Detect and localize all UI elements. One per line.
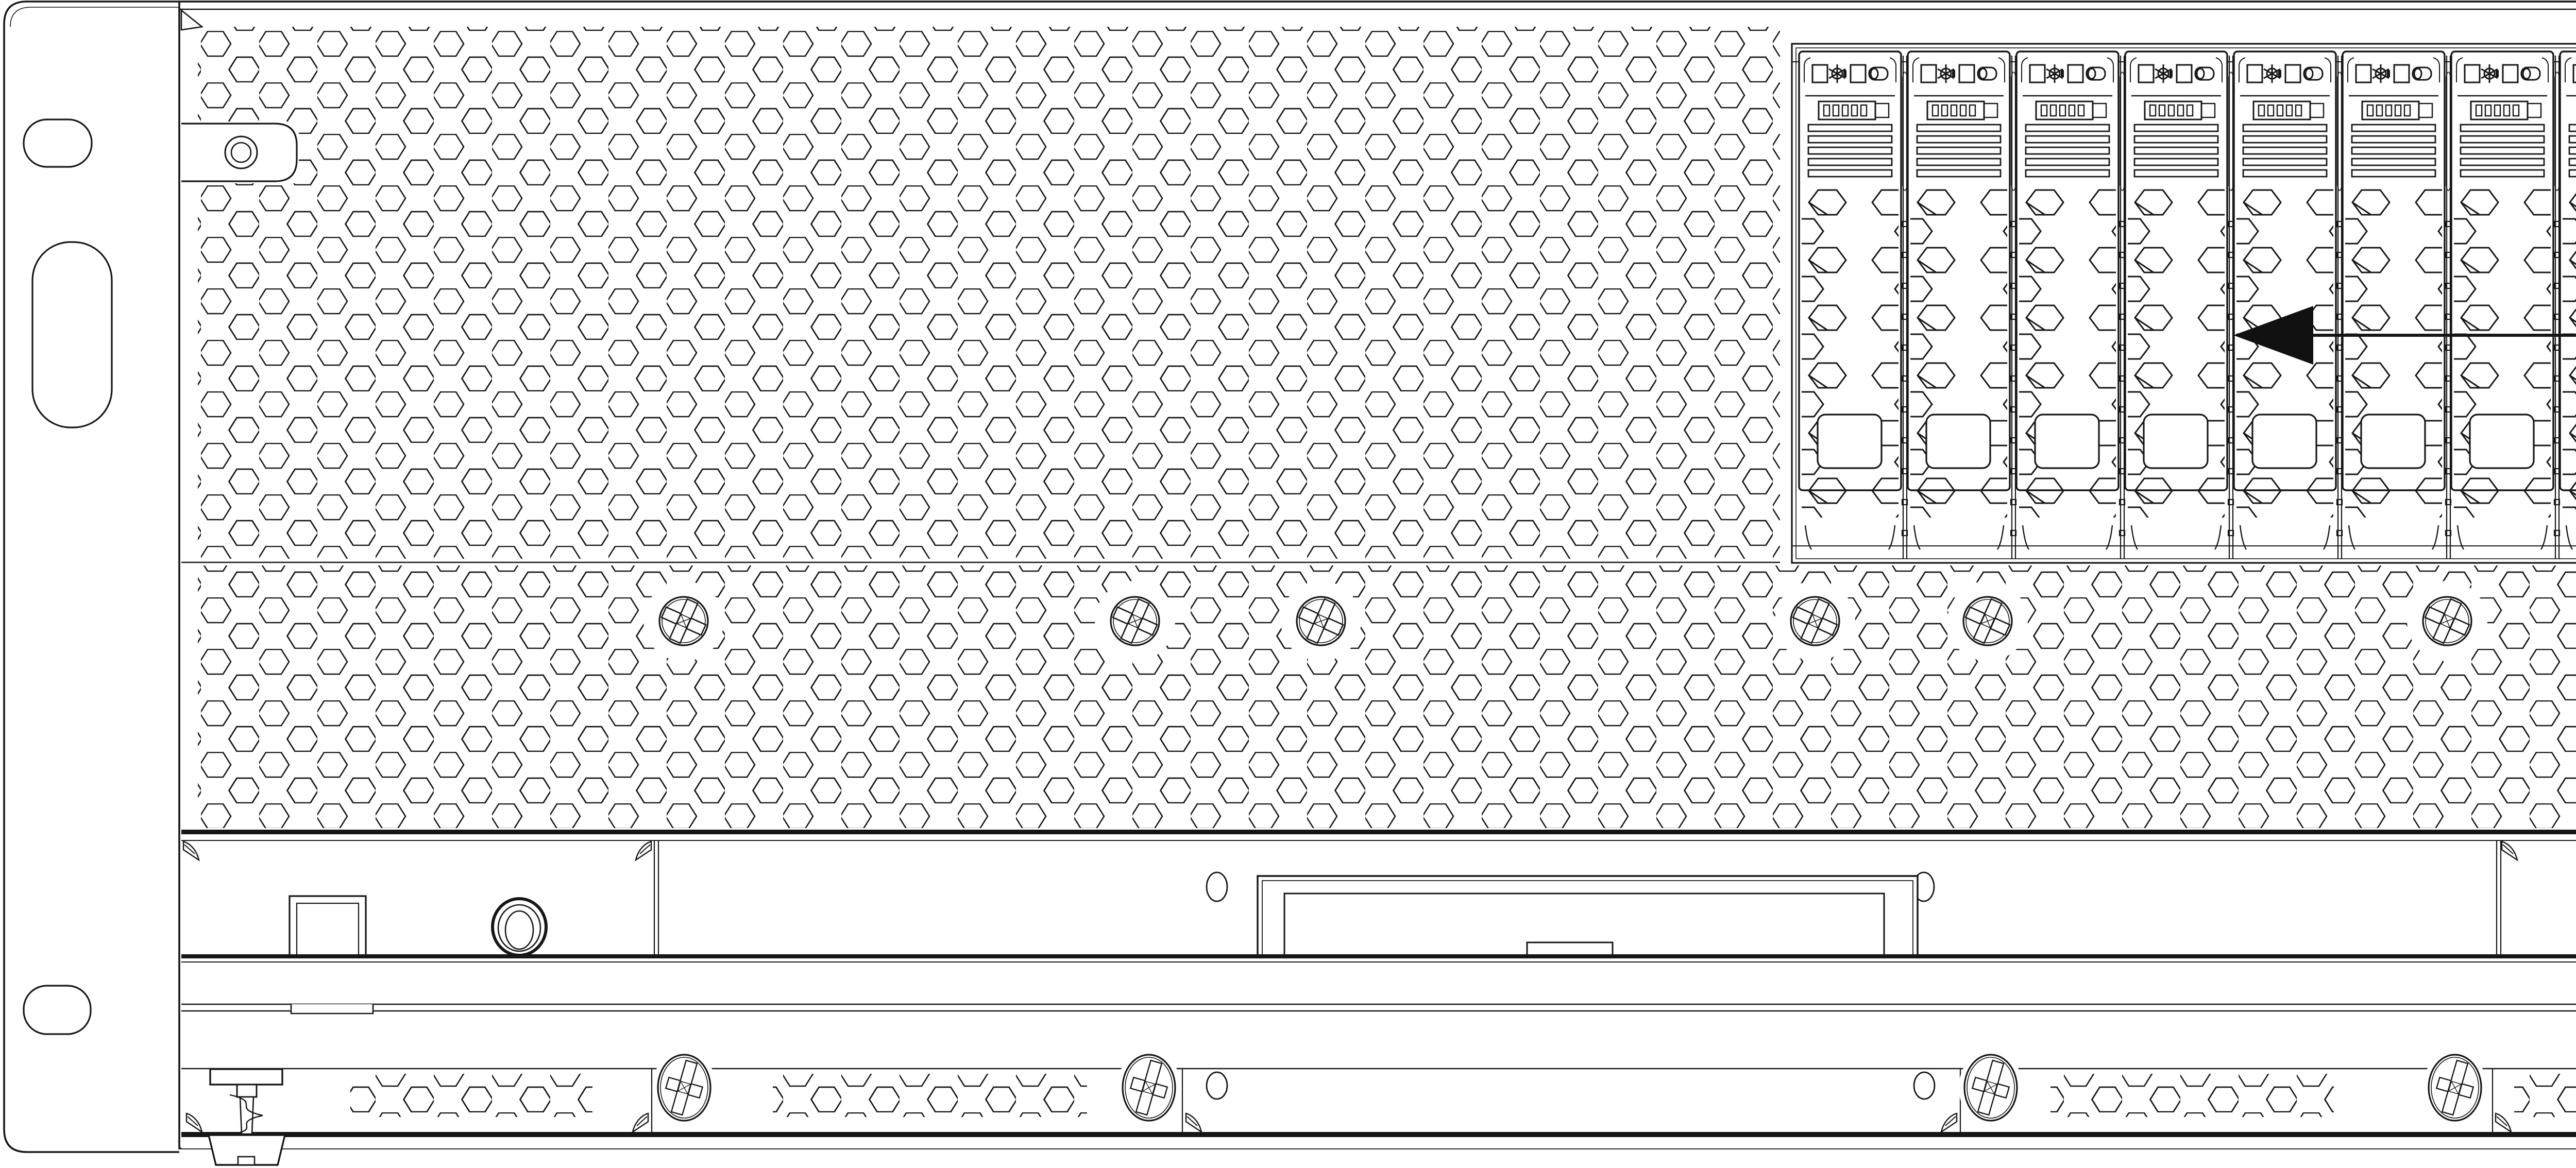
drive-caddy-6[interactable] bbox=[2343, 51, 2445, 549]
band-mesh-strip bbox=[773, 1074, 1087, 1117]
band-mesh-strip bbox=[350, 1074, 592, 1117]
drive-bay bbox=[1780, 21, 2576, 565]
fan-cover-latch-left bbox=[180, 122, 299, 183]
drive-caddy-4[interactable] bbox=[2125, 51, 2227, 549]
bottom-section bbox=[181, 830, 2576, 1165]
fan-cover-screw[interactable] bbox=[1775, 581, 1855, 661]
filter-bar-step-left bbox=[291, 1004, 373, 1014]
drive-caddy-1[interactable] bbox=[1799, 51, 1901, 549]
drive-caddy-5[interactable] bbox=[2234, 51, 2336, 549]
bottom-panel-screw[interactable] bbox=[1959, 1050, 2023, 1126]
band-mesh-strip bbox=[2050, 1074, 2334, 1117]
bottom-panel-screw[interactable] bbox=[1117, 1050, 1181, 1126]
band-oval-hole bbox=[1207, 1072, 1227, 1099]
fan-cover-screw[interactable] bbox=[1095, 581, 1175, 661]
chassis bbox=[4, 2, 2576, 1165]
band-oval-hole bbox=[1914, 1072, 1935, 1099]
drive-caddy-2[interactable] bbox=[1908, 51, 2010, 549]
fan-cover-screw[interactable] bbox=[1281, 581, 1361, 661]
bottom-panel-screw[interactable] bbox=[2423, 1050, 2487, 1126]
panel-button[interactable] bbox=[290, 896, 366, 955]
fan-cover-screw[interactable] bbox=[2407, 581, 2487, 661]
chassis-bottom-heavy-edge bbox=[181, 1132, 2576, 1137]
fan-cover-bottom-edge bbox=[181, 830, 2576, 834]
filter-bar-center-tab bbox=[1527, 942, 1613, 955]
drive-caddy-7[interactable] bbox=[2451, 51, 2553, 549]
drive-caddy-8[interactable] bbox=[2560, 51, 2576, 549]
fan-cover-screw[interactable] bbox=[1947, 581, 2028, 661]
band-mesh-strip bbox=[2514, 1074, 2576, 1117]
bottom-panel-screw[interactable] bbox=[652, 1050, 716, 1126]
server-front-panel-diagram: Drive Caddies Fan Cover Filter Housing i… bbox=[0, 0, 2576, 1168]
drive-caddy-3[interactable] bbox=[2016, 51, 2119, 549]
fan-cover-screw[interactable] bbox=[643, 581, 724, 661]
panel-knob[interactable] bbox=[493, 899, 546, 955]
rack-ear-left bbox=[4, 2, 179, 1152]
